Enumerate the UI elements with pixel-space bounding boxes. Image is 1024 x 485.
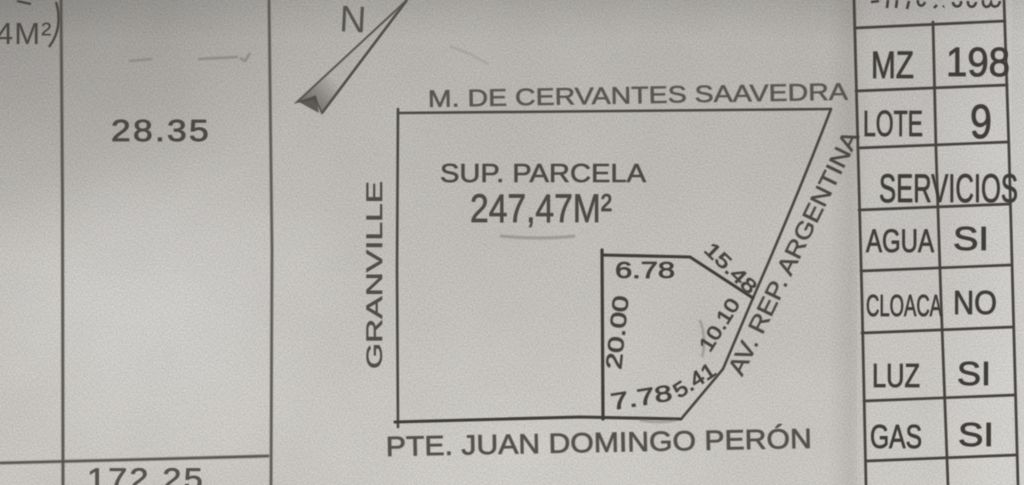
svg-text:LOTE: LOTE	[863, 103, 923, 144]
svg-text:NO: NO	[953, 284, 997, 321]
svg-text:AGUA: AGUA	[866, 223, 934, 259]
svg-text:MZ: MZ	[871, 45, 914, 87]
svg-text:247,47M²: 247,47M²	[470, 187, 612, 231]
svg-text:SERVICIOS: SERVICIOS	[879, 167, 1018, 211]
svg-text:6.78: 6.78	[615, 257, 675, 283]
svg-text:GRANVILLE: GRANVILLE	[362, 181, 387, 369]
svg-text:198: 198	[946, 39, 1010, 85]
svg-text:SI: SI	[958, 416, 994, 453]
svg-text:SI: SI	[957, 355, 991, 392]
svg-text:LUZ: LUZ	[872, 357, 920, 394]
svg-text:172.25: 172.25	[87, 463, 205, 485]
svg-text:9: 9	[970, 96, 992, 149]
svg-text:CLOACA: CLOACA	[866, 288, 942, 323]
svg-text:N: N	[339, 0, 368, 40]
svg-text:28.35: 28.35	[111, 113, 211, 148]
svg-text:GAS: GAS	[870, 418, 922, 455]
svg-text:4M²: 4M²	[0, 16, 52, 51]
svg-text:SI: SI	[953, 220, 989, 257]
svg-text:SUP. PARCELA: SUP. PARCELA	[440, 158, 647, 188]
